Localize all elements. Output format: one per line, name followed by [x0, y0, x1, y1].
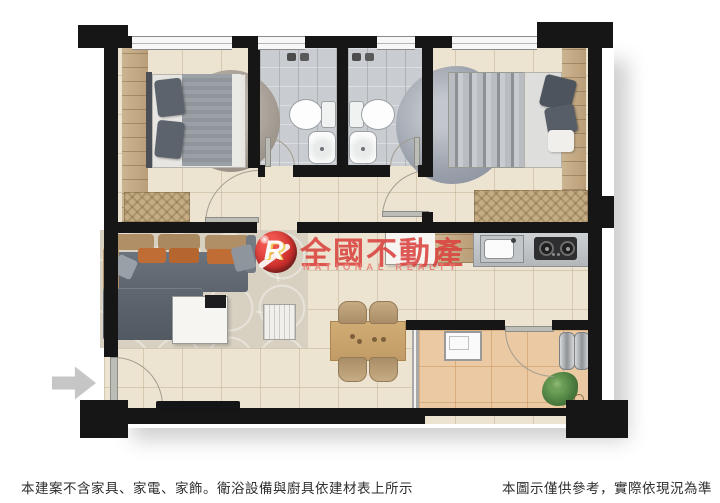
dining-chair	[369, 357, 398, 382]
wall-top	[114, 36, 132, 48]
wall-bedroom1-south	[104, 222, 257, 233]
sink-bathroom-2	[349, 131, 377, 164]
rug-bedroom-2-foot	[474, 190, 588, 224]
caption-right: 本圖示僅供參考，實際依現況為準	[502, 477, 712, 497]
coffee-table-tray	[205, 295, 226, 308]
table-setting-dot	[372, 337, 377, 342]
table-setting-dot	[350, 334, 355, 339]
faucet-icon	[511, 238, 516, 243]
stove-knob	[552, 253, 555, 256]
bed-2-white-pillow	[548, 130, 574, 152]
window-bathroom-2	[377, 36, 415, 50]
door-leaf-bathroom-2	[414, 137, 420, 167]
bed-1-blanket	[182, 74, 232, 166]
wall-top	[305, 36, 377, 48]
floor-plan-canvas: R 全國不動產 NATIONAL REALTY 本建案不含家具、家電、家飾。衛浴…	[0, 0, 720, 503]
wall-bathroom-south	[258, 165, 265, 177]
plant-leaves	[550, 378, 564, 390]
sink-bathroom-1	[308, 131, 336, 164]
water-heater	[559, 332, 575, 370]
bed-1-sheet-fold	[232, 74, 241, 166]
wall-bathroom2-bedroom2	[422, 48, 433, 170]
wall-left	[104, 40, 118, 357]
wall-bedroom1-bathroom1	[248, 48, 260, 168]
wall-balcony-north	[406, 320, 505, 330]
window-bathroom-1	[258, 36, 305, 50]
toilet-tank-bathroom-1	[321, 101, 336, 128]
dining-chair	[338, 301, 367, 324]
table-setting-dot	[357, 339, 362, 344]
wall-top	[232, 36, 258, 48]
brand-logo: R	[255, 231, 297, 273]
entrance-arrow	[52, 365, 96, 401]
wall-balcony-north	[552, 320, 592, 330]
wall-bathroom-south	[293, 165, 390, 177]
sliding-door-glass	[414, 330, 416, 408]
washing-machine-lid	[449, 336, 469, 350]
sofa-cushion-orange	[138, 248, 166, 263]
shower-icon	[287, 53, 296, 61]
stove-knob	[557, 253, 560, 256]
door-leaf-balcony	[505, 326, 554, 332]
toilet-bathroom-1	[289, 99, 323, 130]
bed-2-blanket	[448, 72, 526, 168]
side-table	[263, 304, 296, 340]
stove-burner-icon	[560, 241, 575, 256]
logo-letter: R	[264, 235, 284, 266]
shower-icon	[352, 53, 361, 61]
window-bedroom-1	[132, 36, 232, 50]
wall-bathroom-divider	[337, 48, 348, 177]
dining-chair	[369, 301, 398, 324]
dining-chair	[338, 357, 367, 382]
bed-1-pillow	[154, 77, 185, 117]
table-setting-dot	[381, 337, 386, 342]
caption-left: 本建案不含家具、家電、家飾。衛浴設備與廚具依建材表上所示	[21, 477, 413, 497]
bed-1-pillow	[154, 120, 185, 160]
shower-icon	[365, 53, 374, 61]
window-bedroom-2	[452, 36, 537, 50]
sofa-cushion-orange	[169, 248, 199, 263]
door-leaf-bathroom-1	[265, 137, 271, 167]
tv-console	[156, 401, 240, 412]
rug-bedroom-1-foot	[124, 192, 190, 222]
toilet-bathroom-2	[361, 99, 395, 130]
wall-column-bottom-right	[566, 400, 628, 438]
shower-icon	[300, 53, 309, 61]
door-leaf-entrance	[110, 357, 118, 406]
wall-top	[415, 36, 452, 48]
wall-balcony-bottom	[425, 408, 566, 416]
wall-column-top-right	[537, 22, 613, 48]
watermark-subtitle: NATIONAL REALTY	[303, 262, 460, 273]
kitchen-sink-basin	[484, 239, 514, 259]
dining-table	[330, 321, 406, 361]
